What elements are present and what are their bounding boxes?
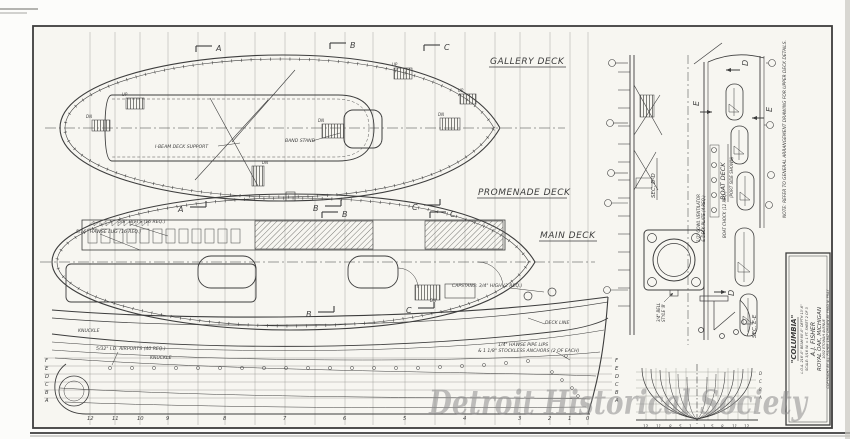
stair-up-label: UP xyxy=(122,92,128,97)
boat-chock-label: BOAT CHOCK (12 REQ.) xyxy=(722,191,727,238)
stair-dn-label: DN xyxy=(262,160,268,165)
sec-ee-label: SEC. E-E xyxy=(752,314,758,338)
svg-text:11: 11 xyxy=(112,416,119,422)
svg-text:A: A xyxy=(44,398,49,404)
capstans-label: CAPSTANS: 3/4" HIGH (2 REQ.) xyxy=(452,283,523,289)
stair-dn-label: DN xyxy=(86,114,92,119)
svg-text:C: C xyxy=(45,382,49,388)
section-b-plan2-bottom: B xyxy=(306,310,312,319)
svg-text:11: 11 xyxy=(656,424,661,429)
section-c-top: C xyxy=(444,43,450,52)
svg-text:12: 12 xyxy=(744,424,750,429)
section-b-top: B xyxy=(350,41,356,50)
title-dimensions: L.O.A. 216'-0" BEAM 60'-0" DEPTH 13'-6" xyxy=(800,304,804,374)
svg-text:11: 11 xyxy=(732,424,737,429)
svg-text:D: D xyxy=(759,371,762,376)
plan-drawing: I-BEAM DECK SUPPORT BAND STAND UP DN UP … xyxy=(0,0,850,439)
bell-label-2: STYLE 'B' xyxy=(661,304,666,322)
deck-line-label: DECK LINE xyxy=(545,320,569,326)
svg-text:10: 10 xyxy=(137,416,144,422)
stair-dn-label: DN xyxy=(438,112,444,117)
title-vessel-name: "COLUMBIA" xyxy=(790,315,798,363)
stair-dn-label: DN xyxy=(430,298,436,303)
svg-text:12: 12 xyxy=(87,416,94,422)
section-b-plan2-top: B xyxy=(342,210,348,219)
section-b-bottom: B xyxy=(313,204,319,213)
svg-text:B: B xyxy=(45,390,49,396)
knuckle-label-1: KNUCKLE xyxy=(78,328,100,334)
svg-text:D: D xyxy=(615,374,619,380)
bitts-label: 5/8" BITTS (16 REQ.) xyxy=(118,219,166,225)
airports-label: 5/32" I.D. AIRPORTS (40 REQ.) xyxy=(96,346,166,352)
svg-text:1: 1 xyxy=(689,424,692,429)
hawse-pipe-label-2: & 1 1/8" STOCKLESS ANCHORS (2 OF EACH) xyxy=(478,348,580,354)
stair-up-label: UP xyxy=(392,62,398,67)
hawse-pipe-label-1: 1/4" HAWSE PIPE LIPS xyxy=(498,342,548,348)
i-beam-label: I-BEAM DECK SUPPORT xyxy=(155,144,209,150)
stair-dn-label: DN xyxy=(318,118,324,123)
promenade-deck-title: PROMENADE DECK xyxy=(478,188,571,198)
sec-dd-label: SEC. D-D xyxy=(651,173,657,198)
section-c-plan2-top: C xyxy=(450,210,456,219)
section-a-top: A xyxy=(215,44,221,53)
general-arrangement-note: NOTE: REFER TO GENERAL ARRANGEMENT DRAWI… xyxy=(782,40,788,218)
gallery-deck-title: GALLERY DECK xyxy=(490,57,565,67)
title-scale-sheet: SCALE: 3/16 IN. = 1 FT. SHEET 2 OF 3 xyxy=(805,307,809,371)
stair-up-label: UP xyxy=(458,88,464,93)
title-firm: A.J. FISHER xyxy=(810,322,817,357)
knuckle-label-2: KNUCKLE xyxy=(150,355,172,361)
svg-text:1: 1 xyxy=(703,424,706,429)
svg-text:9: 9 xyxy=(166,416,169,422)
hawse-lug-label: 5/16" HAWSE LUG (16 REQ.) xyxy=(76,229,141,235)
svg-text:D: D xyxy=(45,374,49,380)
band-stand-label: BAND STAND xyxy=(285,138,316,144)
section-d-marker-2: D xyxy=(727,290,736,296)
svg-text:12: 12 xyxy=(643,424,649,429)
scanned-ship-plan-sheet: I-BEAM DECK SUPPORT BAND STAND UP DN UP … xyxy=(0,0,850,439)
section-d-marker: D xyxy=(741,60,750,66)
title-copyright: COPYRIGHT BY A.J. FISHER 1947 DRAWN BY F… xyxy=(826,289,830,389)
watermark-text: Detroit Historical Society xyxy=(428,383,809,423)
boat-deck-subtitle: (PORT SIDE SHOWN) xyxy=(729,156,734,198)
main-deck-title: MAIN DECK xyxy=(540,231,596,241)
